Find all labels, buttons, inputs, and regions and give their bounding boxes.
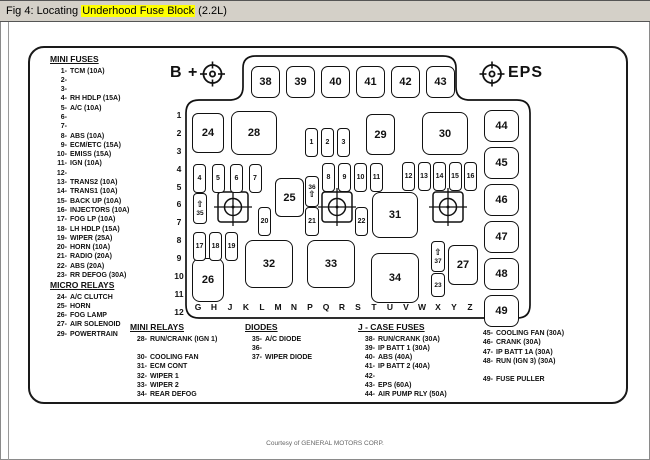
eps-label: EPS bbox=[508, 64, 543, 82]
list-item: 12- bbox=[50, 169, 129, 178]
mini-fuse: 12 bbox=[402, 162, 415, 191]
mini-fuse: 4 bbox=[193, 164, 206, 193]
relay-30: 30 bbox=[422, 112, 468, 155]
mini-fuse-22: 22 bbox=[355, 207, 368, 236]
mini-fuse-group-4-7: 4567 bbox=[193, 164, 262, 193]
terminal-letter: Z bbox=[462, 302, 478, 312]
mini-fuse: 3 bbox=[337, 128, 350, 157]
list-item: 18-LH HDLP (15A) bbox=[50, 225, 129, 234]
relay-socket-icon bbox=[214, 188, 252, 226]
mini-fuse-20: 20 bbox=[258, 207, 271, 236]
terminal-letter-row: GHJKLMNPQRSTUVWXYZ bbox=[190, 302, 478, 312]
list-item: 44-AIR PUMP RLY (50A) bbox=[358, 390, 447, 399]
diode-35: ⇧ 35 bbox=[193, 193, 207, 224]
eps-bolt-icon bbox=[480, 62, 505, 87]
mini-fuse: 15 bbox=[449, 162, 462, 191]
terminal-letter: S bbox=[350, 302, 366, 312]
diode-number: 37 bbox=[434, 258, 441, 265]
list-item: 48-RUN (IGN 3) (30A) bbox=[476, 357, 564, 366]
list-item: 1-TCM (10A) bbox=[50, 67, 129, 76]
row-number: 9 bbox=[172, 253, 186, 271]
terminal-letter: P bbox=[302, 302, 318, 312]
row-number: 2 bbox=[172, 128, 186, 146]
list-item: 16-INJECTORS (10A) bbox=[50, 206, 129, 215]
list-item: 39-IP BATT 1 (30A) bbox=[358, 344, 447, 353]
row-number: 11 bbox=[172, 289, 186, 307]
row-number: 5 bbox=[172, 182, 186, 200]
terminal-letter: V bbox=[398, 302, 414, 312]
terminal-letter: W bbox=[414, 302, 430, 312]
row-number: 1 bbox=[172, 110, 186, 128]
mini-fuse: 19 bbox=[225, 232, 238, 261]
mini-fuse-group-1-3: 123 bbox=[305, 128, 350, 157]
jcase-fuse: 47 bbox=[484, 221, 519, 253]
list-item: 45-COOLING FAN (30A) bbox=[476, 329, 564, 338]
list-item: 47-IP BATT 1A (30A) bbox=[476, 348, 564, 357]
list-item: 35-A/C DIODE bbox=[245, 335, 312, 344]
diode-36: 36 ⇧ bbox=[305, 176, 319, 207]
list-item: 23-RR DEFOG (30A) bbox=[50, 271, 129, 280]
list-item: 3- bbox=[50, 85, 129, 94]
row-number: 4 bbox=[172, 164, 186, 182]
jcase-fuse: 40 bbox=[321, 66, 350, 98]
terminal-letter: X bbox=[430, 302, 446, 312]
mini-fuse: 5 bbox=[212, 164, 225, 193]
mini-fuses-list: MINI FUSES 1-TCM (10A)2-3-4-RH HDLP (15A… bbox=[50, 54, 129, 280]
list-item bbox=[476, 366, 564, 375]
right-fuse-column: 444546474849 bbox=[484, 110, 519, 327]
mini-fuse: 10 bbox=[354, 163, 367, 192]
row-number: 7 bbox=[172, 217, 186, 235]
relay-32: 32 bbox=[245, 240, 293, 288]
list-item: 37-WIPER DIODE bbox=[245, 353, 312, 362]
jcase-fuse: 49 bbox=[484, 295, 519, 327]
jcase-fuse: 39 bbox=[286, 66, 315, 98]
misc-fuses-list: 45-COOLING FAN (30A)46-CRANK (30A)47-IP … bbox=[476, 329, 564, 385]
mini-fuse: 17 bbox=[193, 232, 206, 261]
row-number: 6 bbox=[172, 199, 186, 217]
list-item: 41-IP BATT 2 (40A) bbox=[358, 362, 447, 371]
list-item: 26-FOG LAMP bbox=[50, 311, 121, 320]
mini-fuse-21: 21 bbox=[305, 207, 319, 236]
mini-fuse: 14 bbox=[433, 162, 446, 191]
terminal-letter: M bbox=[270, 302, 286, 312]
list-item: 7- bbox=[50, 122, 129, 131]
jcase-fuse: 46 bbox=[484, 184, 519, 216]
list-item: 9-ECM/ETC (15A) bbox=[50, 141, 129, 150]
list-item: 24-A/C CLUTCH bbox=[50, 293, 121, 302]
jcase-fuse: 43 bbox=[426, 66, 455, 98]
list-item: 36- bbox=[245, 344, 312, 353]
mini-fuse: 11 bbox=[370, 163, 383, 192]
footer-credit: Courtesy of GENERAL MOTORS CORP. bbox=[0, 440, 650, 447]
relay-33: 33 bbox=[307, 240, 355, 288]
list-item: 33-WIPER 2 bbox=[130, 381, 217, 390]
jcase-fuse: 42 bbox=[391, 66, 420, 98]
list-item: 27-AIR SOLENOID bbox=[50, 320, 121, 329]
relay-socket-icon bbox=[318, 188, 356, 226]
mini-fuse-group-12-16: 1213141516 bbox=[402, 162, 477, 191]
row-number: 3 bbox=[172, 146, 186, 164]
list-item: 13-TRANS2 (10A) bbox=[50, 178, 129, 187]
terminal-letter: J bbox=[222, 302, 238, 312]
terminal-letter: N bbox=[286, 302, 302, 312]
mini-relays-list: MINI RELAYS 28-RUN/CRANK (IGN 1)30-COOLI… bbox=[130, 322, 217, 400]
diode-arrow-icon: ⇧ bbox=[196, 201, 204, 210]
list-item: 11-IGN (10A) bbox=[50, 159, 129, 168]
list-item: 31-ECM CONT bbox=[130, 362, 217, 371]
mini-fuse-group-8-11: 891011 bbox=[322, 163, 383, 192]
mini-fuse: 2 bbox=[321, 128, 334, 157]
mini-fuse: 6 bbox=[230, 164, 243, 193]
terminal-letter: L bbox=[254, 302, 270, 312]
list-header: MINI FUSES bbox=[50, 54, 129, 64]
relay-29: 29 bbox=[366, 114, 395, 155]
list-item: 46-CRANK (30A) bbox=[476, 338, 564, 347]
mini-fuse: 13 bbox=[418, 162, 431, 191]
jcase-fuse: 45 bbox=[484, 147, 519, 179]
b-plus-label: B + bbox=[170, 64, 198, 82]
mini-fuse: 16 bbox=[464, 162, 477, 191]
diode-37: ⇧ 37 bbox=[431, 241, 445, 272]
list-item bbox=[130, 344, 217, 353]
jcase-fuse: 48 bbox=[484, 258, 519, 290]
diode-number: 35 bbox=[196, 210, 203, 217]
list-item: 29-POWERTRAIN bbox=[50, 330, 121, 339]
mini-fuse: 7 bbox=[249, 164, 262, 193]
diode-arrow-icon: ⇧ bbox=[434, 249, 442, 258]
list-item: 42- bbox=[358, 372, 447, 381]
jcase-fuse: 41 bbox=[356, 66, 385, 98]
list-item: 25-HORN bbox=[50, 302, 121, 311]
list-item: 6- bbox=[50, 113, 129, 122]
list-header: MICRO RELAYS bbox=[50, 280, 121, 290]
relay-socket-icon bbox=[429, 188, 467, 226]
list-item: 30-COOLING FAN bbox=[130, 353, 217, 362]
list-header: MINI RELAYS bbox=[130, 322, 217, 332]
terminal-letter: G bbox=[190, 302, 206, 312]
list-item: 40-ABS (40A) bbox=[358, 353, 447, 362]
list-item: 2- bbox=[50, 76, 129, 85]
jcase-fuses-list: J - CASE FUSES 38-RUN/CRANK (30A)39-IP B… bbox=[358, 322, 447, 400]
relay-31: 31 bbox=[372, 192, 418, 238]
list-item: 19-WIPER (25A) bbox=[50, 234, 129, 243]
row-number-column: 123456789101112 bbox=[172, 110, 186, 325]
list-header: DIODES bbox=[245, 322, 312, 332]
list-item: 4-RH HDLP (15A) bbox=[50, 94, 129, 103]
terminal-letter: Y bbox=[446, 302, 462, 312]
list-item: 15-BACK UP (10A) bbox=[50, 197, 129, 206]
list-item: 10-EMISS (15A) bbox=[50, 150, 129, 159]
relay-34: 34 bbox=[371, 253, 419, 303]
mini-fuse: 8 bbox=[322, 163, 335, 192]
diodes-list: DIODES 35-A/C DIODE36-37-WIPER DIODE bbox=[245, 322, 312, 362]
list-item: 17-FOG LP (10A) bbox=[50, 215, 129, 224]
list-item: 22-ABS (20A) bbox=[50, 262, 129, 271]
b-plus-bolt-icon bbox=[200, 62, 225, 87]
list-item: 32-WIPER 1 bbox=[130, 372, 217, 381]
relay-25: 25 bbox=[275, 178, 304, 217]
relay-27: 27 bbox=[448, 245, 478, 285]
relay-24: 24 bbox=[192, 113, 224, 153]
relay-28: 28 bbox=[231, 111, 277, 155]
mini-fuse: 9 bbox=[338, 163, 351, 192]
jcase-top-row: 383940414243 bbox=[251, 66, 455, 98]
terminal-letter: R bbox=[334, 302, 350, 312]
jcase-fuse: 38 bbox=[251, 66, 280, 98]
list-item: 5-A/C (10A) bbox=[50, 104, 129, 113]
list-header: J - CASE FUSES bbox=[358, 322, 447, 332]
list-item: 14-TRANS1 (10A) bbox=[50, 187, 129, 196]
list-item: 34-REAR DEFOG bbox=[130, 390, 217, 399]
relay-26: 26 bbox=[192, 258, 224, 302]
diode-arrow-icon: ⇧ bbox=[308, 191, 316, 200]
mini-fuse: 1 bbox=[305, 128, 318, 157]
mini-fuse: 18 bbox=[209, 232, 222, 261]
list-item: 28-RUN/CRANK (IGN 1) bbox=[130, 335, 217, 344]
terminal-letter: U bbox=[382, 302, 398, 312]
row-number: 8 bbox=[172, 235, 186, 253]
list-item: 49-FUSE PULLER bbox=[476, 375, 564, 384]
list-item: 38-RUN/CRANK (30A) bbox=[358, 335, 447, 344]
row-number: 10 bbox=[172, 271, 186, 289]
list-item: 21-RADIO (20A) bbox=[50, 252, 129, 261]
list-item: 20-HORN (10A) bbox=[50, 243, 129, 252]
jcase-fuse: 44 bbox=[484, 110, 519, 142]
list-item: 8-ABS (10A) bbox=[50, 132, 129, 141]
mini-fuse-group-17-19: 171819 bbox=[193, 232, 238, 261]
list-item: 43-EPS (60A) bbox=[358, 381, 447, 390]
mini-fuse-23: 23 bbox=[431, 273, 445, 297]
micro-relays-list: MICRO RELAYS 24-A/C CLUTCH25-HORN26-FOG … bbox=[50, 280, 121, 339]
terminal-letter: T bbox=[366, 302, 382, 312]
terminal-letter: K bbox=[238, 302, 254, 312]
terminal-letter: Q bbox=[318, 302, 334, 312]
terminal-letter: H bbox=[206, 302, 222, 312]
